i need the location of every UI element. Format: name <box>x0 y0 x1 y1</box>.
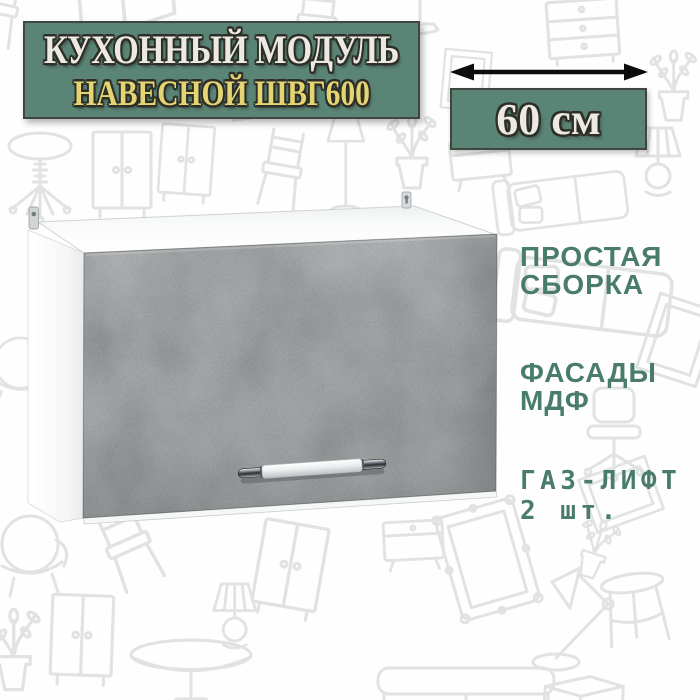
title-banner: КУХОННЫЙ МОДУЛЬ НАВЕСНОЙ ШВГ600 <box>23 21 420 119</box>
cabinet-facade <box>70 215 510 530</box>
dimension-value-box: 60 см <box>450 88 647 150</box>
feature-line: МДФ <box>520 387 657 415</box>
feature-gas-lift: ГАЗ-ЛИФТ 2 шт. <box>520 466 681 526</box>
product-title: КУХОННЫЙ МОДУЛЬ <box>5 28 438 72</box>
feature-line: ПРОСТАЯ <box>520 243 662 271</box>
cabinet-handle <box>238 457 387 484</box>
feature-line: СБОРКА <box>520 271 662 299</box>
mount-bracket-right <box>402 192 411 208</box>
cabinet-left-side <box>28 230 84 522</box>
product-subtitle: НАВЕСНОЙ ШВГ600 <box>41 73 402 113</box>
mount-bracket-left <box>29 207 39 229</box>
cabinet-top-face <box>38 206 497 253</box>
feature-line: ФАСАДЫ <box>520 359 657 387</box>
feature-line: ГАЗ-ЛИФТ <box>520 466 681 496</box>
dimension-value: 60 см <box>496 94 601 145</box>
width-arrow-icon <box>448 61 650 83</box>
product-card: КУХОННЫЙ МОДУЛЬ НАВЕСНОЙ ШВГ600 60 см ПР… <box>0 0 700 700</box>
cabinet-bottom-edge <box>84 491 497 524</box>
feature-mdf-facades: ФАСАДЫ МДФ <box>520 359 657 415</box>
feature-line: 2 шт. <box>520 496 681 526</box>
feature-simple-assembly: ПРОСТАЯ СБОРКА <box>520 243 662 299</box>
